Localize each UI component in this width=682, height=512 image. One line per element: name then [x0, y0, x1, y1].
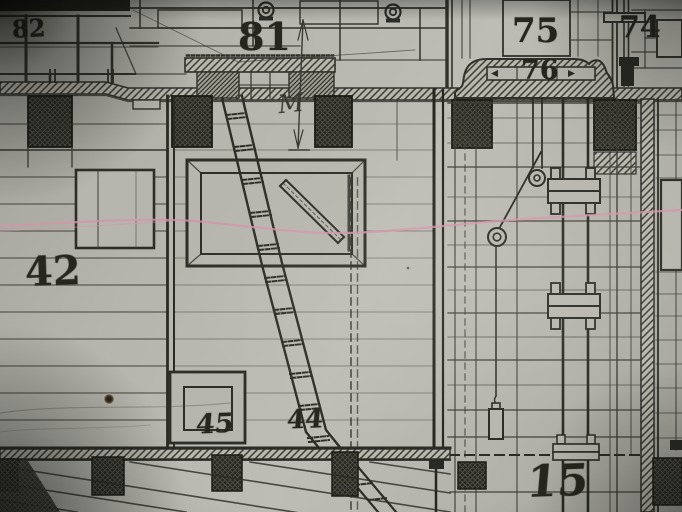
compartment-label-75: 75: [512, 14, 559, 48]
compartment-label-82: 82: [11, 16, 46, 42]
compartment-label-74: 74: [619, 13, 661, 43]
compartment-label-45: 45: [195, 410, 235, 438]
pin-hole: [103, 393, 115, 405]
mast-with-flanges: [548, 99, 600, 512]
hatch-opening-frame: [187, 160, 365, 266]
lower-deck: [0, 448, 450, 512]
photographed-technical-drawing: 82 81 75 76 74 42 45 44 15 M: [0, 0, 682, 512]
compartment-label-81: 81: [238, 18, 291, 56]
right-bulkhead: [641, 99, 682, 512]
compartment-label-15: 15: [525, 459, 590, 505]
drawing-linework: [0, 0, 682, 512]
compartment-label-44: 44: [286, 406, 325, 433]
dark-block: [458, 462, 486, 489]
compartment-label-76: 76: [521, 57, 559, 84]
compartment-label-42: 42: [24, 251, 81, 293]
handwritten-m-annotation: M: [277, 90, 305, 118]
